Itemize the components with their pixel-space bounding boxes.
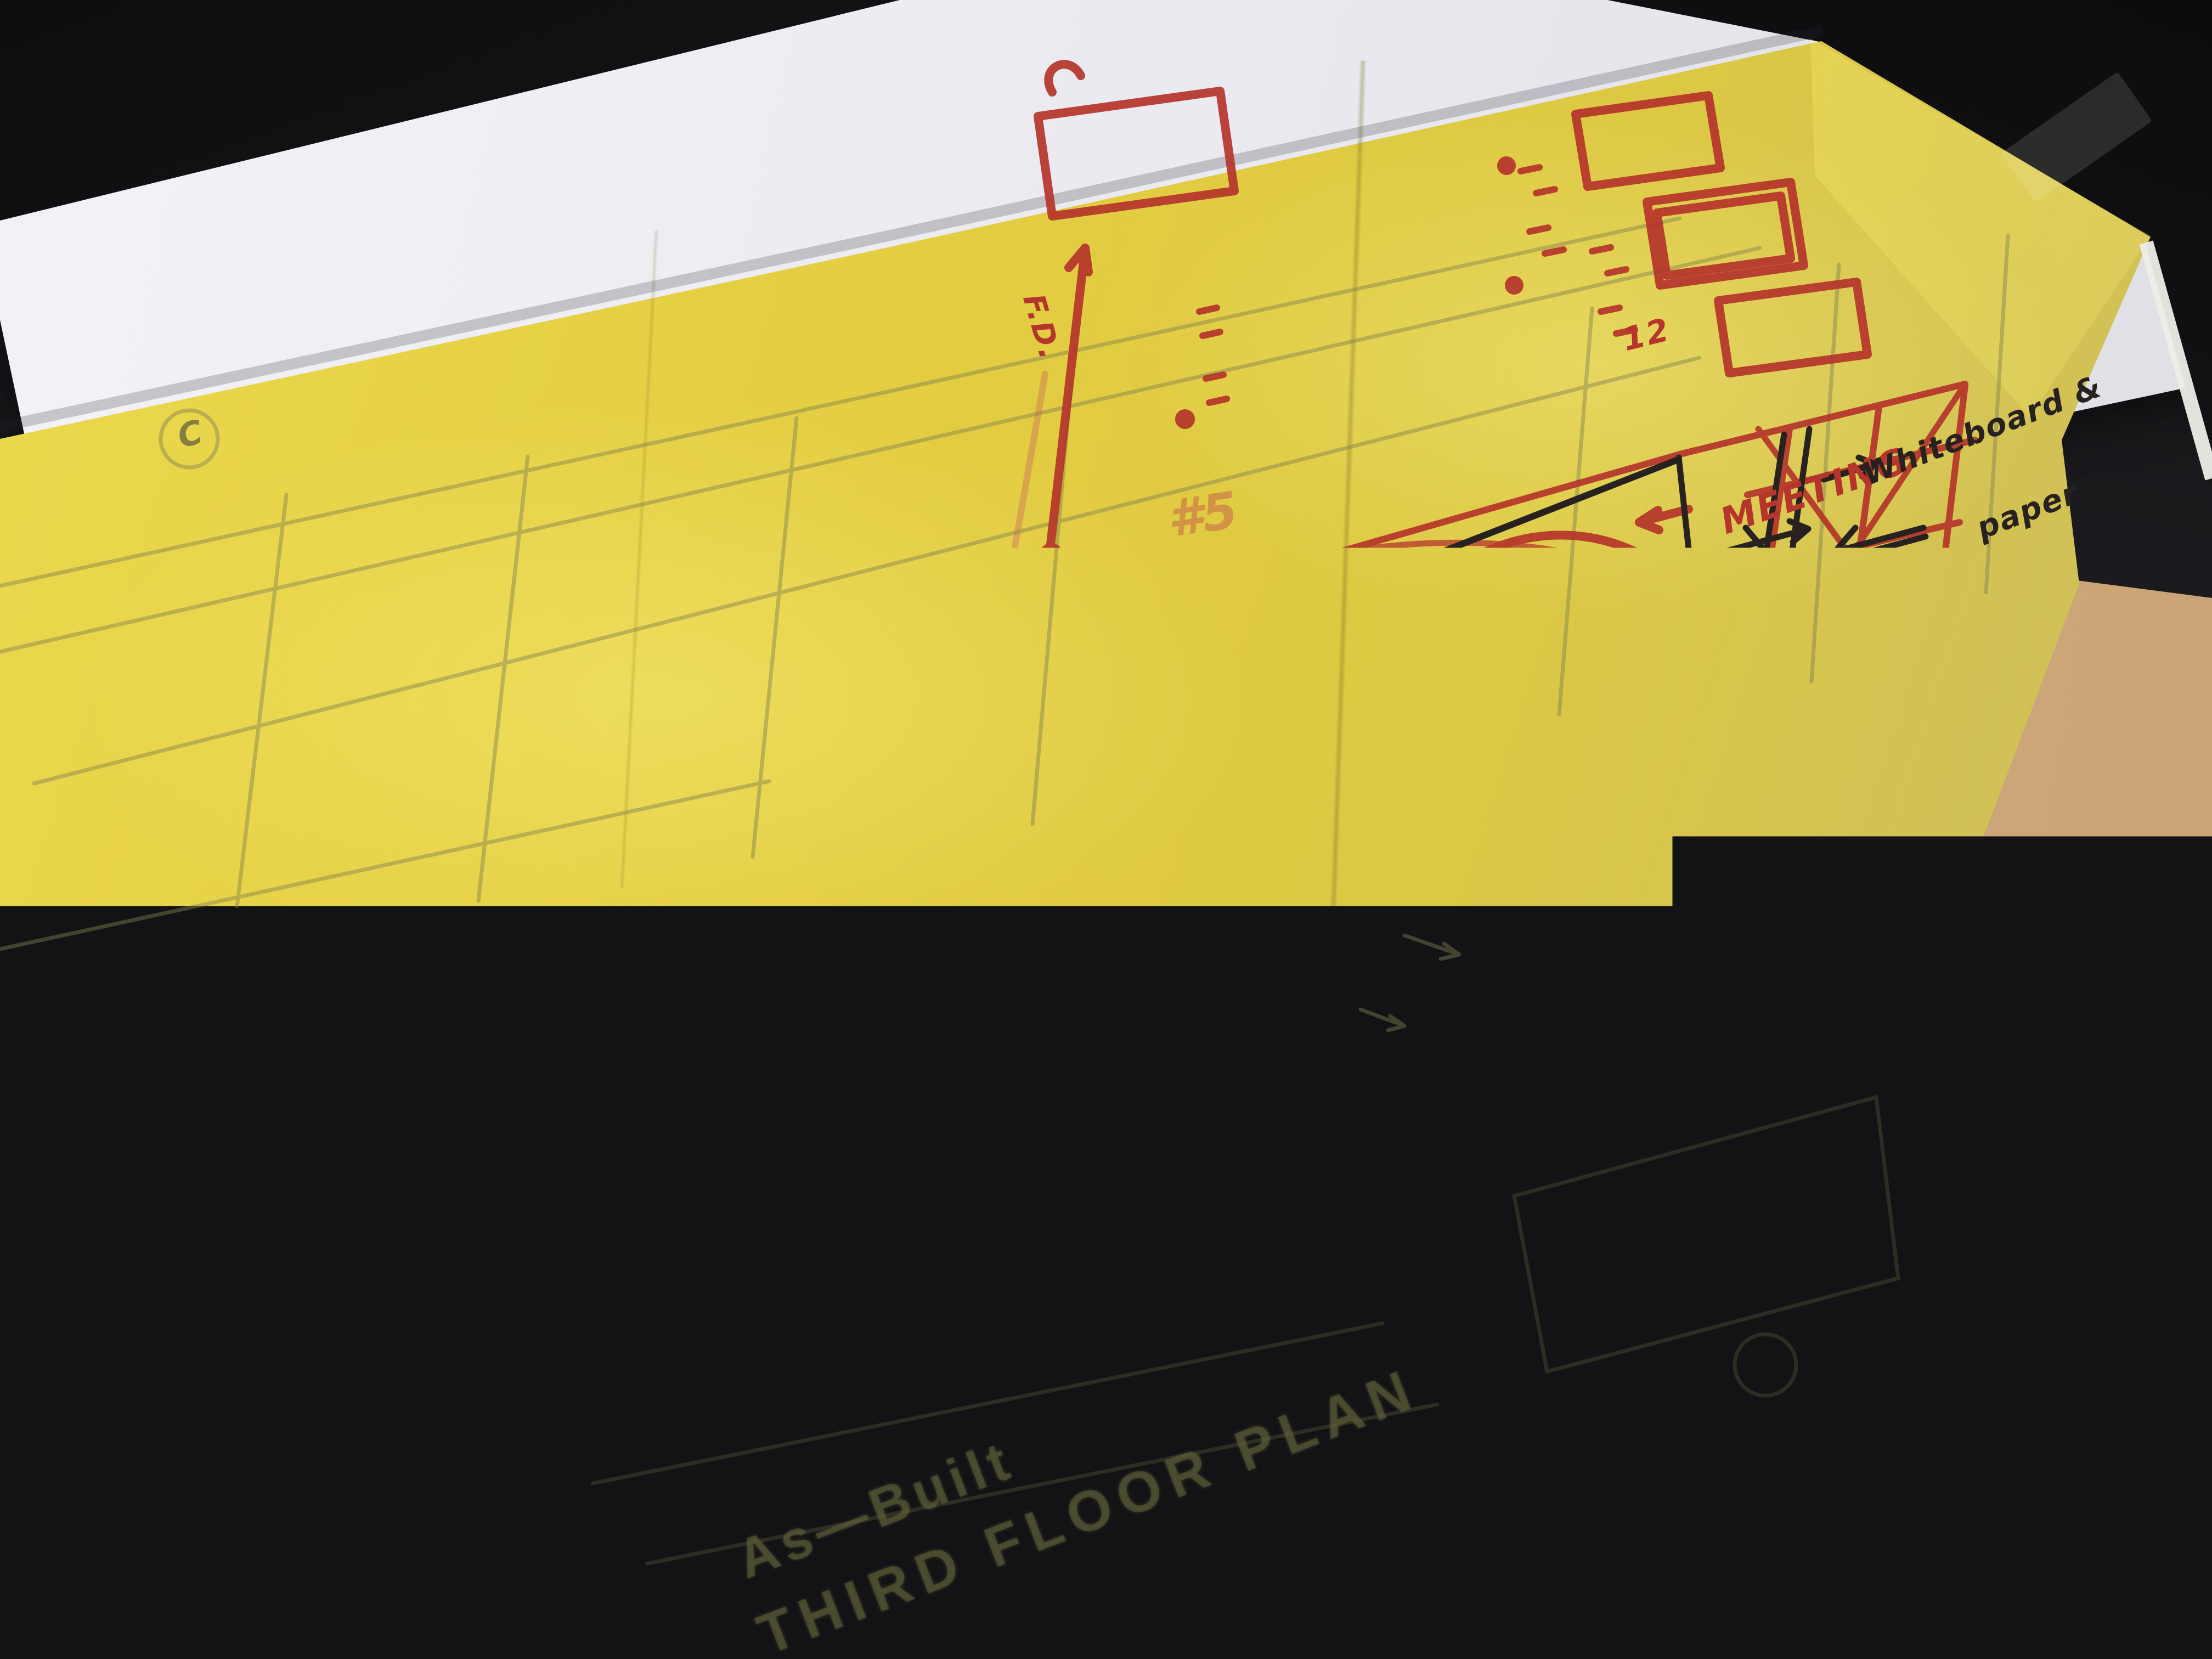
arrow-to-main-conf (767, 879, 844, 906)
pencil-note-cs: CS (1607, 668, 1645, 696)
faded-red-note: #5 (1164, 485, 1241, 545)
plan-sheet-number: 6 (1753, 1343, 1776, 1380)
tape-glare-highlight-3 (1437, 1267, 1487, 1333)
photo-of-annotated-floor-plan: C Q&M + STAFF SCS UH CS /LOUNGE B OFFICE… (0, 0, 2212, 1659)
black-lower-chord (33, 808, 959, 1005)
tear-shadow (0, 928, 1953, 1411)
table-sketch-right-1 (1576, 95, 1720, 187)
table-sketch-right-3 (1718, 282, 1867, 373)
black-diagonal-to-edge (1926, 681, 2212, 921)
paper-curl-edge (2146, 242, 2212, 478)
arrow-to-records (317, 1375, 418, 1403)
red-arrow-left (1639, 509, 1689, 530)
